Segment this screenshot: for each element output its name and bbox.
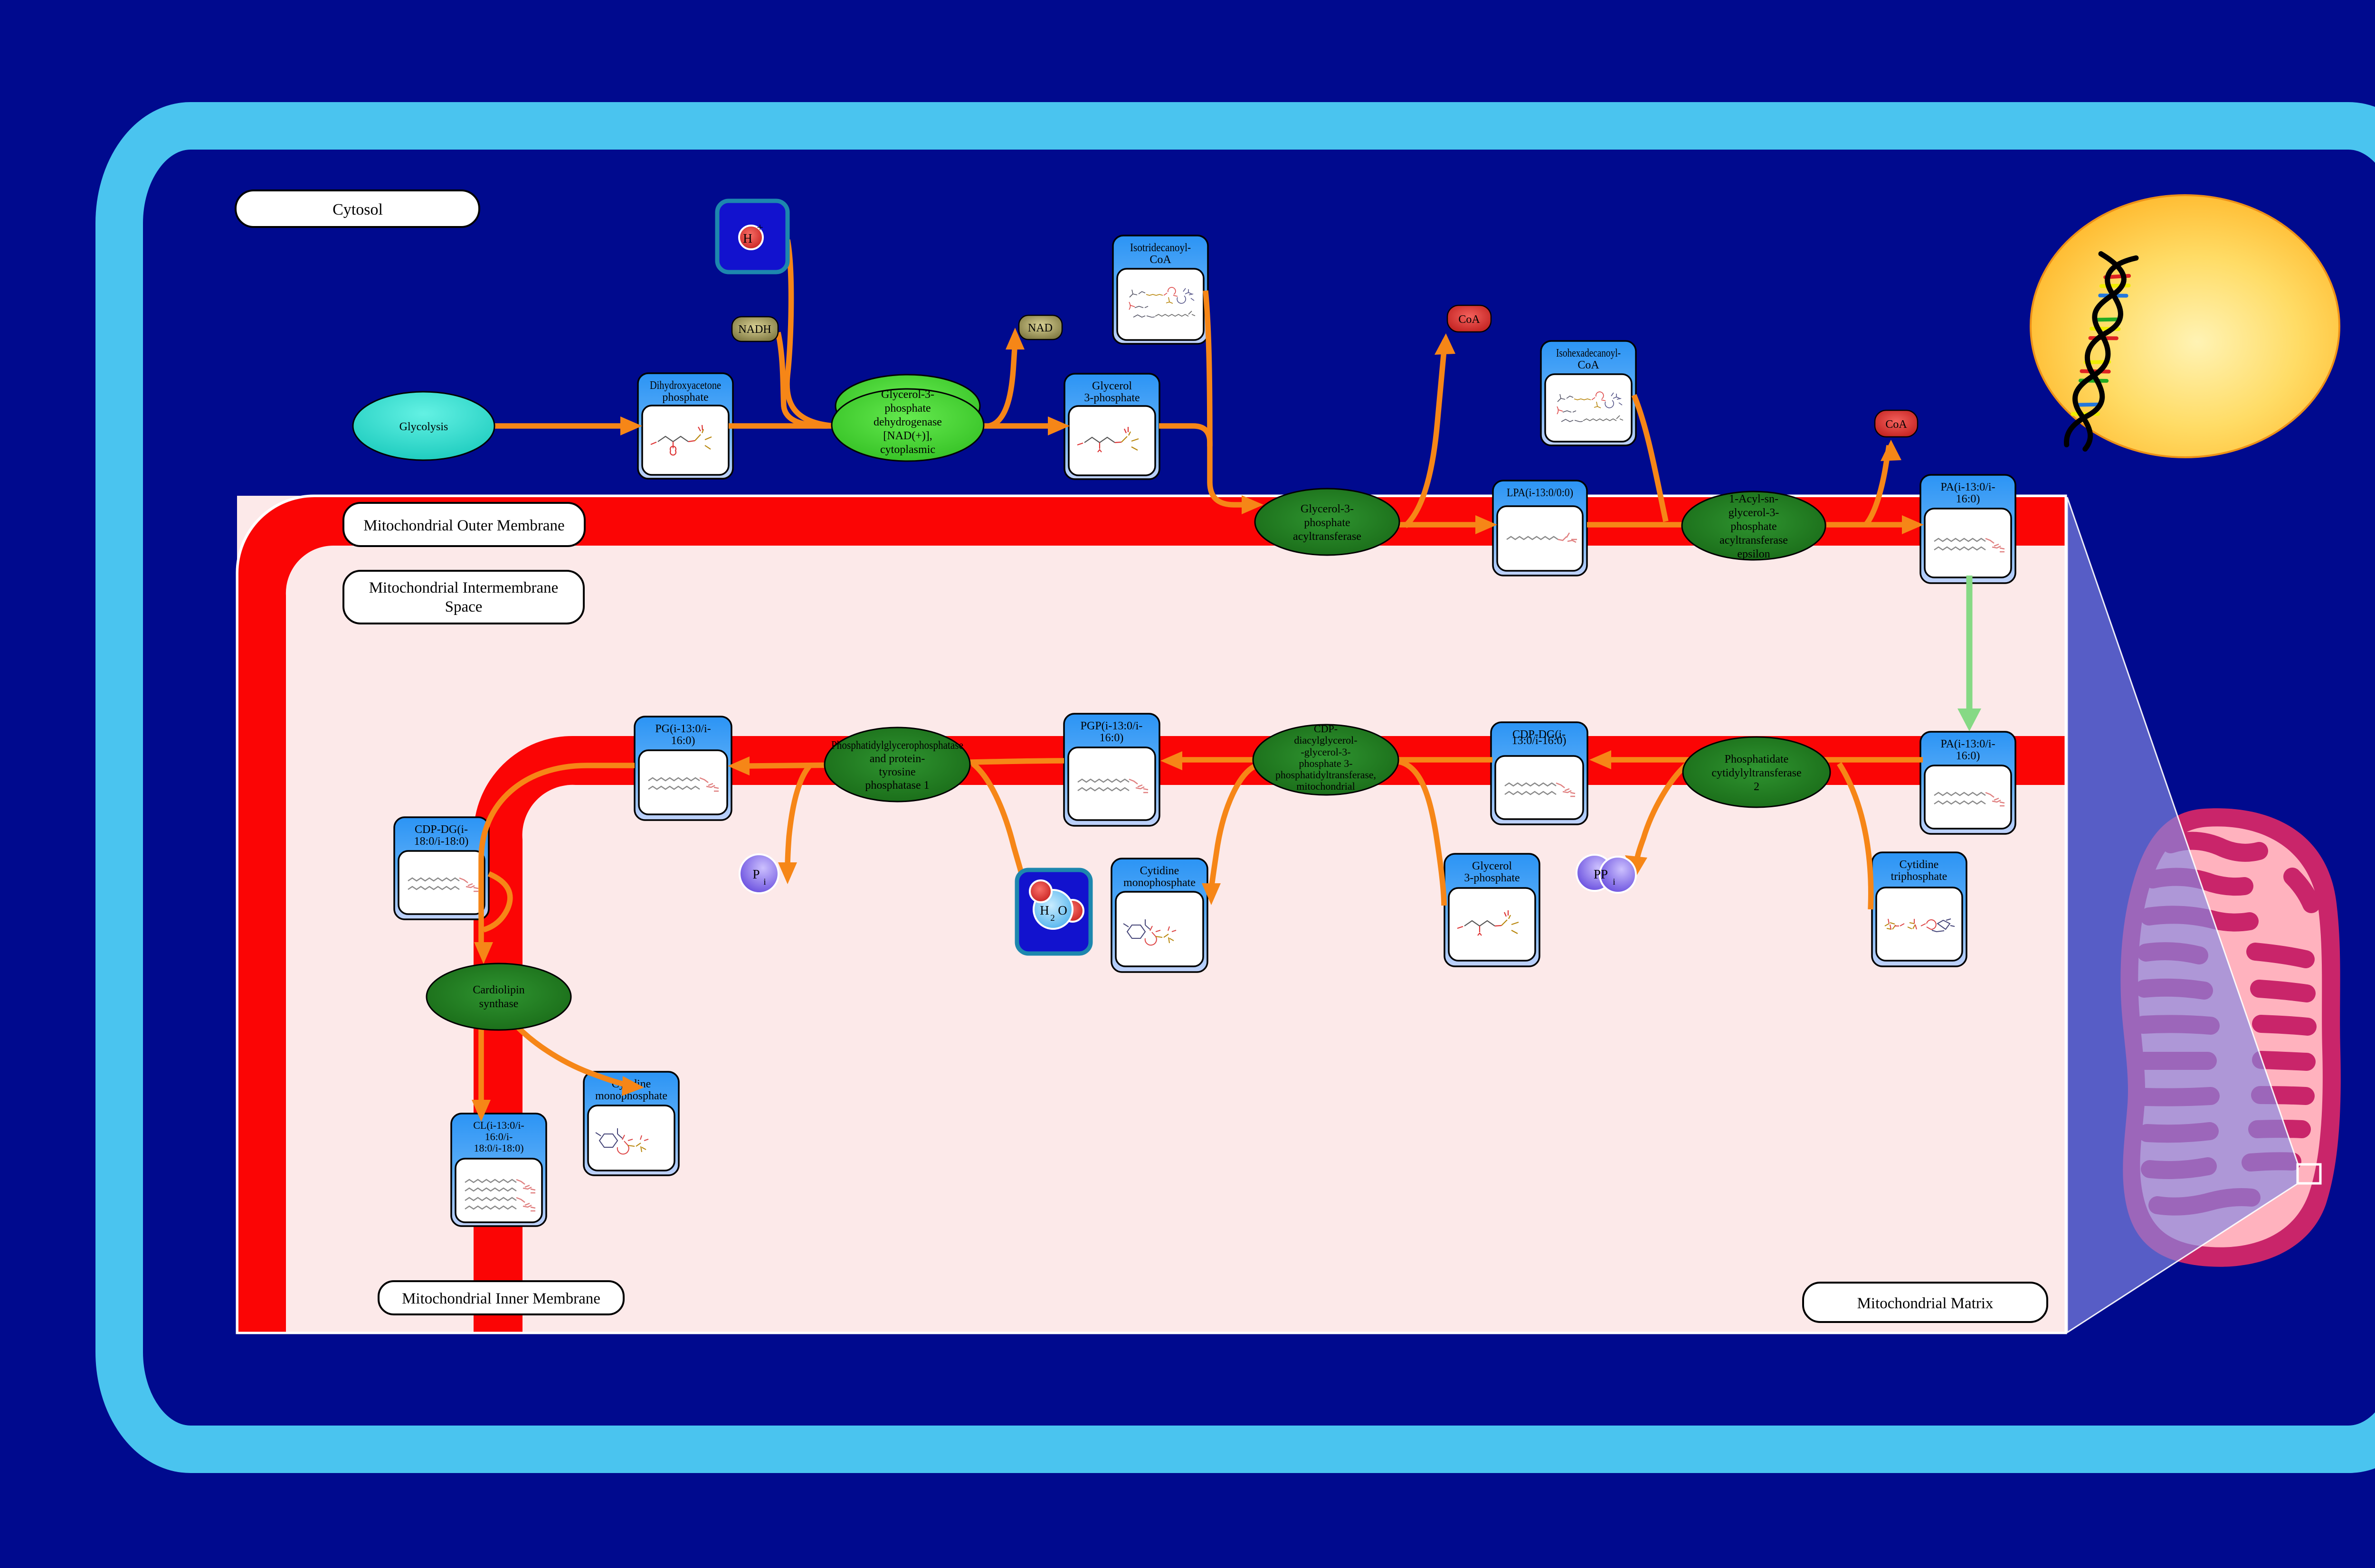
svg-text:Phosphatidylglycerophosphatase: Phosphatidylglycerophosphatase — [831, 739, 963, 752]
svg-text:Glycerol-3-: Glycerol-3- — [881, 388, 934, 401]
svg-text:phosphate: phosphate — [662, 391, 708, 404]
svg-text:18:0/i-18:0): 18:0/i-18:0) — [474, 1142, 523, 1154]
svg-text:CDP-DG(i-: CDP-DG(i- — [415, 823, 468, 836]
svg-text:acyltransferase: acyltransferase — [1719, 534, 1788, 547]
svg-text:triphosphate: triphosphate — [1891, 870, 1947, 883]
svg-text:Cytidine: Cytidine — [1900, 859, 1939, 871]
svg-text:PG(i-13:0/i-: PG(i-13:0/i- — [655, 723, 711, 735]
svg-text:Cardiolipin: Cardiolipin — [473, 984, 524, 996]
svg-text:16:0): 16:0) — [671, 735, 695, 747]
svg-text:Glycerol-3-: Glycerol-3- — [1301, 503, 1354, 515]
svg-text:PP: PP — [1594, 867, 1608, 881]
svg-text:CL(i-13:0/i-: CL(i-13:0/i- — [473, 1119, 524, 1131]
svg-text:Mitochondrial Outer Membrane: Mitochondrial Outer Membrane — [363, 517, 564, 534]
svg-text:epsilon: epsilon — [1737, 548, 1770, 560]
svg-text:3-phosphate: 3-phosphate — [1464, 872, 1520, 884]
svg-text:CoA: CoA — [1458, 313, 1480, 326]
svg-text:phosphate: phosphate — [884, 402, 931, 415]
svg-text:Space: Space — [445, 598, 483, 615]
svg-text:P: P — [752, 867, 760, 881]
svg-text:acyltransferase: acyltransferase — [1293, 530, 1361, 543]
svg-text:18:0/i-18:0): 18:0/i-18:0) — [414, 835, 469, 848]
svg-text:synthase: synthase — [479, 998, 519, 1010]
svg-text:Glycerol: Glycerol — [1472, 860, 1512, 872]
svg-text:PA(i-13:0/i-: PA(i-13:0/i- — [1940, 481, 1995, 493]
svg-text:phosphatase 1: phosphatase 1 — [865, 779, 929, 792]
svg-text:glycerol-3-: glycerol-3- — [1729, 507, 1779, 519]
svg-text:2: 2 — [1754, 781, 1759, 793]
svg-text:16:0): 16:0) — [1956, 750, 1980, 762]
svg-text:16:0): 16:0) — [1956, 493, 1980, 505]
svg-text:Cytosol: Cytosol — [332, 201, 383, 218]
svg-text:16:0/i-: 16:0/i- — [485, 1131, 513, 1143]
svg-text:phosphate: phosphate — [1304, 517, 1350, 529]
svg-text:NAD: NAD — [1028, 322, 1053, 334]
svg-text:cytoplasmic: cytoplasmic — [880, 444, 935, 456]
svg-text:CoA: CoA — [1885, 418, 1907, 431]
svg-text:phosphatidyltransferase,: phosphatidyltransferase, — [1275, 769, 1376, 781]
svg-text:3-phosphate: 3-phosphate — [1084, 392, 1140, 404]
svg-text:phosphate 3-: phosphate 3- — [1299, 757, 1352, 769]
svg-text:+: + — [757, 222, 763, 234]
svg-text:16:0): 16:0) — [1100, 732, 1124, 744]
svg-text:Phosphatidate: Phosphatidate — [1725, 753, 1789, 765]
svg-text:mitochondrial: mitochondrial — [1296, 780, 1355, 792]
svg-text:cytidylyltransferase: cytidylyltransferase — [1711, 767, 1801, 779]
svg-text:i: i — [763, 877, 766, 887]
svg-text:H: H — [1040, 903, 1049, 917]
svg-text:phosphate: phosphate — [1730, 520, 1776, 533]
svg-text:NADH: NADH — [738, 323, 771, 336]
svg-text:Cytidine: Cytidine — [1140, 865, 1179, 877]
svg-text:CDP-: CDP- — [1314, 723, 1338, 735]
svg-text:-glycerol-3-: -glycerol-3- — [1301, 746, 1350, 758]
svg-text:diacylglycerol-: diacylglycerol- — [1294, 734, 1357, 746]
svg-text:Glycerol: Glycerol — [1092, 380, 1132, 392]
svg-text:i: i — [1613, 877, 1615, 887]
svg-text:Isotridecanoyl-: Isotridecanoyl- — [1130, 242, 1191, 254]
svg-text:O: O — [1058, 903, 1067, 917]
svg-text:2: 2 — [1050, 913, 1055, 923]
svg-text:monophosphate: monophosphate — [1123, 877, 1196, 889]
svg-text:Mitochondrial Matrix: Mitochondrial Matrix — [1857, 1295, 1994, 1312]
svg-text:H: H — [743, 231, 752, 246]
svg-text:PGP(i-13:0/i-: PGP(i-13:0/i- — [1081, 720, 1143, 732]
svg-text:13:0/i-16:0): 13:0/i-16:0) — [1512, 735, 1567, 747]
svg-text:CoA: CoA — [1149, 254, 1171, 266]
svg-text:LPA(i-13:0/0:0): LPA(i-13:0/0:0) — [1507, 487, 1573, 499]
svg-text:Isohexadecanoyl-: Isohexadecanoyl- — [1556, 347, 1621, 359]
svg-text:tyrosine: tyrosine — [879, 766, 915, 778]
svg-text:[NAD(+)],: [NAD(+)], — [883, 430, 932, 442]
svg-text:Mitochondrial Intermembrane: Mitochondrial Intermembrane — [369, 579, 559, 596]
svg-text:Mitochondrial Inner Membrane: Mitochondrial Inner Membrane — [402, 1290, 600, 1307]
svg-text:dehydrogenase: dehydrogenase — [874, 416, 942, 428]
svg-text:Glycolysis: Glycolysis — [399, 421, 448, 433]
svg-text:PA(i-13:0/i-: PA(i-13:0/i- — [1940, 738, 1995, 750]
svg-text:CoA: CoA — [1577, 359, 1599, 371]
svg-text:and protein-: and protein- — [870, 753, 925, 765]
svg-text:1-Acyl-sn-: 1-Acyl-sn- — [1729, 493, 1778, 505]
svg-text:Dihydroxyacetone: Dihydroxyacetone — [650, 379, 721, 392]
